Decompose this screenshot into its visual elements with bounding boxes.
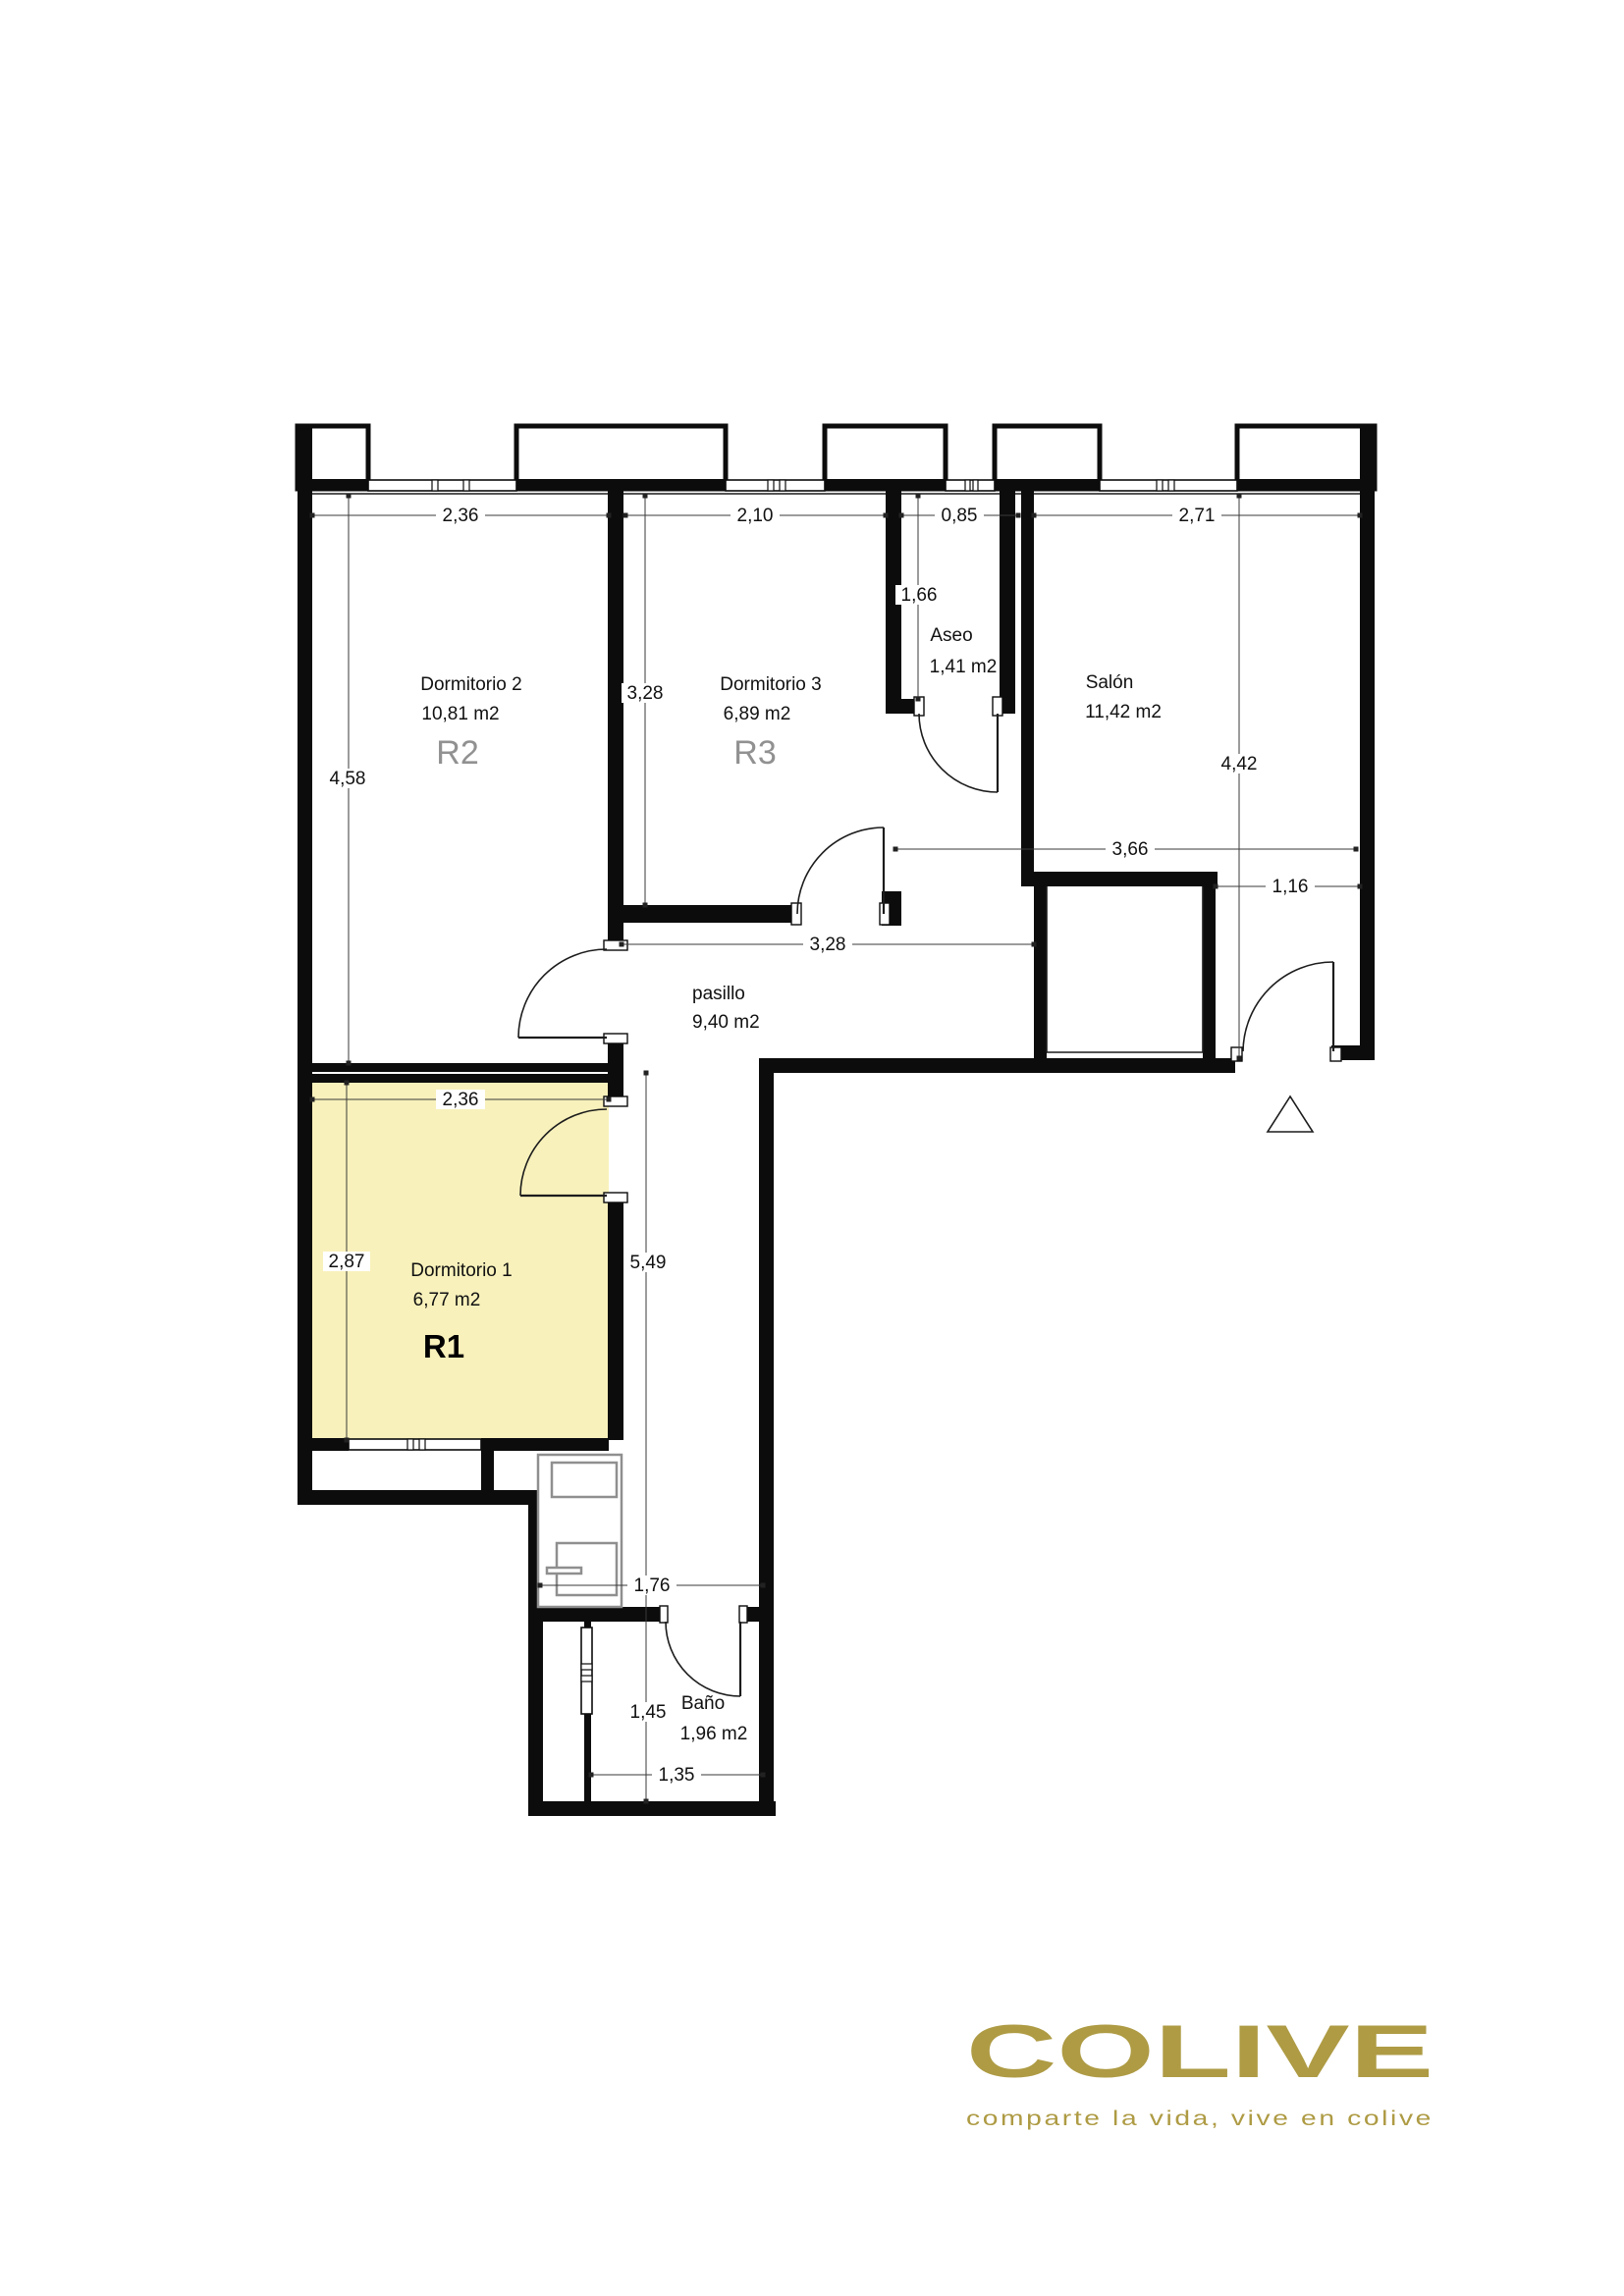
door-r3	[797, 828, 884, 914]
dim-bano-width: 1,35	[659, 1765, 695, 1786]
room-d3-area: 6,89 m2	[724, 704, 791, 724]
colive-logo-text: COLIVE	[966, 2010, 1434, 2094]
dim-salon-bottom: 3,66	[1112, 839, 1149, 860]
colive-logo-tagline: comparte la vida, vive en colive	[966, 2107, 1434, 2130]
entrance-triangle-icon	[1268, 1096, 1313, 1132]
room-d3-name: Dormitorio 3	[720, 674, 821, 695]
room-bano-area: 1,96 m2	[680, 1724, 748, 1744]
room-d1-area: 6,77 m2	[413, 1290, 481, 1310]
door-aseo	[919, 714, 998, 792]
laundry-fixtures	[538, 1455, 622, 1607]
dim-corridor-height: 5,49	[630, 1253, 667, 1273]
room-d2-area: 10,81 m2	[421, 704, 499, 724]
dim-salon-height: 4,42	[1221, 754, 1258, 774]
dim-aseo-height: 1,66	[901, 585, 938, 606]
room-d3-code: R3	[733, 734, 776, 772]
room-aseo-area: 1,41 m2	[930, 657, 998, 677]
dim-pasillo-width: 3,28	[810, 934, 846, 955]
door-r2	[518, 949, 607, 1038]
dim-laundry-width: 1,76	[634, 1575, 671, 1596]
door-entry	[1243, 962, 1333, 1051]
room-d1-code: R1	[423, 1328, 464, 1364]
door-bano	[666, 1622, 740, 1696]
door-jambs	[604, 697, 1341, 1623]
floor-plan-svg: 2,36 2,10 0,85 2,71 3,66 1,16 3,28 2,36 …	[0, 0, 1624, 2296]
room-aseo-name: Aseo	[930, 625, 972, 646]
dim-d3-width: 2,10	[737, 506, 774, 526]
room-d2-name: Dormitorio 2	[420, 674, 521, 695]
dim-bano-height: 1,45	[630, 1702, 667, 1723]
dim-d1-width: 2,36	[443, 1090, 479, 1110]
colive-logo: COLIVE comparte la vida, vive en colive	[966, 2010, 1434, 2130]
dim-salon-width: 2,71	[1179, 506, 1216, 526]
room-pasillo-area: 9,40 m2	[692, 1012, 760, 1033]
dim-d2-height: 4,58	[330, 769, 366, 789]
dim-d1-height: 2,87	[329, 1252, 365, 1272]
dim-d2-width: 2,36	[443, 506, 479, 526]
dim-aseo-width: 0,85	[942, 506, 978, 526]
doors	[518, 714, 1333, 1696]
room-salon-area: 11,42 m2	[1085, 702, 1162, 722]
room-bano-name: Baño	[681, 1693, 725, 1714]
dim-entry-width: 1,16	[1272, 877, 1309, 897]
dim-d3-height: 3,28	[627, 683, 664, 704]
room-pasillo-name: pasillo	[692, 984, 745, 1004]
room-salon-name: Salón	[1086, 672, 1134, 693]
room-d1-name: Dormitorio 1	[410, 1260, 512, 1281]
room-d2-code: R2	[436, 734, 478, 772]
